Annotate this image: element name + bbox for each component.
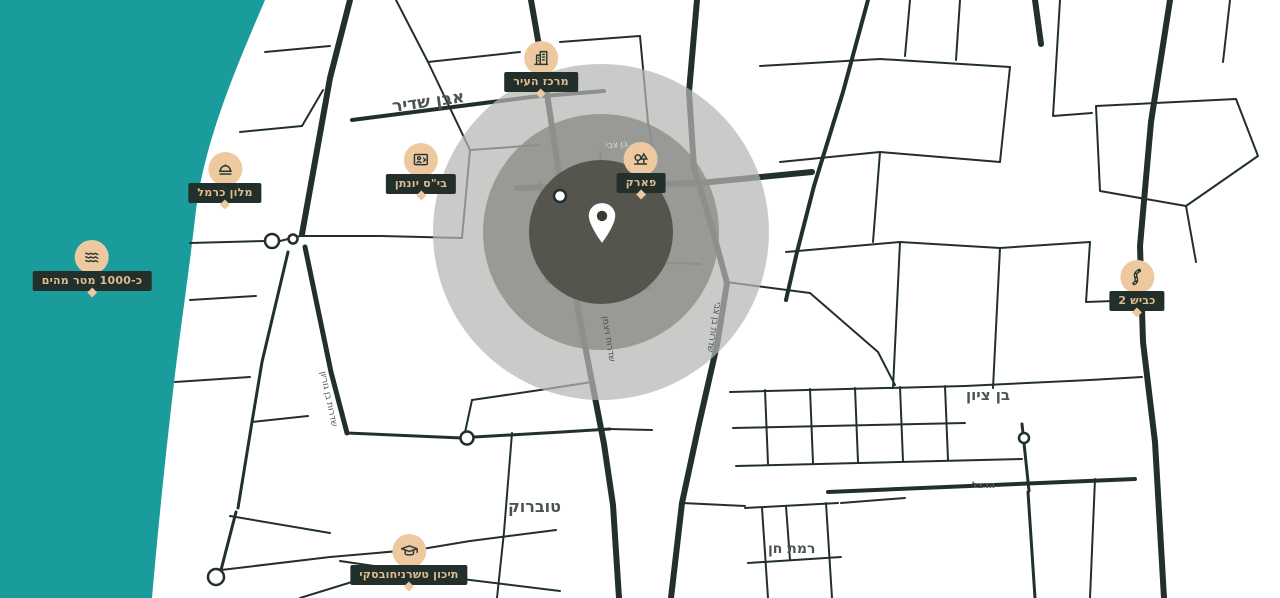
map-canvas xyxy=(0,0,1280,598)
school-icon xyxy=(404,143,438,177)
waves-icon xyxy=(75,240,109,274)
location-pin-icon[interactable] xyxy=(585,201,619,249)
street-label: בן ציון xyxy=(966,386,1010,404)
poi-distance-to-sea[interactable]: כ-1000 מטר מהים xyxy=(33,240,152,296)
street-label: הרצל xyxy=(972,481,995,491)
street-label: רמת חן xyxy=(768,541,815,557)
graduation-cap-icon xyxy=(392,534,426,568)
poi-highway-2[interactable]: כביש 2 xyxy=(1109,260,1164,316)
poi-yonatan-school[interactable]: בי"ס יונתן xyxy=(386,143,456,199)
sea-area xyxy=(0,0,265,598)
city-hall-icon xyxy=(524,41,558,75)
park-icon xyxy=(624,142,658,176)
poi-city-center[interactable]: מרכז העיר xyxy=(504,41,578,97)
poi-carmel-hotel[interactable]: מלון כרמל xyxy=(188,152,261,208)
hotel-icon xyxy=(208,152,242,186)
poi-park[interactable]: פארק xyxy=(617,142,666,198)
highway-icon xyxy=(1120,260,1154,294)
poi-tchernichovsky-high-school[interactable]: תיכון טשרניחובסקי xyxy=(350,534,467,590)
street-label: טוברוק xyxy=(508,497,561,516)
location-map: אבן שדיר בן צבי בן ציון טוברוק רמת חן הר… xyxy=(0,0,1280,598)
